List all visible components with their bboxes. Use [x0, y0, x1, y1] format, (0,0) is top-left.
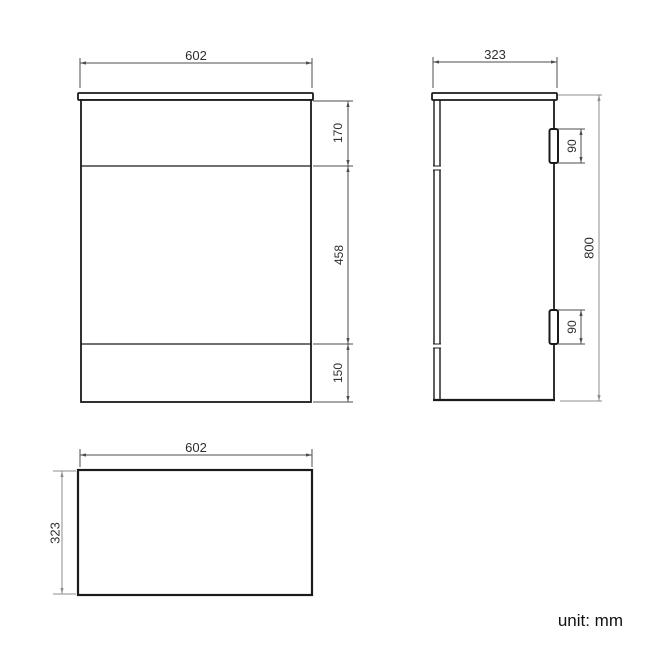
arrowhead-icon	[551, 60, 557, 63]
arrowhead-icon	[597, 95, 600, 101]
arrowhead-icon	[306, 453, 312, 456]
side-depth-dimension: 323	[433, 47, 557, 88]
technical-drawing-page: 602 170 458 150	[0, 0, 650, 650]
hinge-top-dimension: 90	[558, 129, 585, 163]
top-depth-label: 323	[48, 522, 63, 544]
units-note: unit: mm	[558, 611, 623, 630]
top-view-outline	[78, 470, 312, 595]
side-view: 323 90	[432, 47, 602, 401]
top-width-dimension: 602	[80, 440, 312, 467]
top-depth-dimension: 323	[48, 471, 77, 594]
top-width-label: 602	[185, 440, 207, 455]
front-width-label: 602	[185, 48, 207, 63]
arrowhead-icon	[306, 61, 312, 64]
arrowhead-icon	[579, 310, 582, 316]
arrowhead-icon	[346, 396, 349, 402]
hinge-bottom	[550, 310, 559, 344]
side-depth-label: 323	[484, 47, 506, 62]
arrowhead-icon	[579, 129, 582, 135]
arrowhead-icon	[433, 60, 439, 63]
arrowhead-icon	[346, 160, 349, 166]
top-view: 602 323	[48, 440, 313, 595]
hinge-top-label: 90	[565, 139, 579, 153]
arrowhead-icon	[60, 471, 63, 477]
arrowhead-icon	[346, 338, 349, 344]
front-top-section-label: 170	[331, 123, 345, 143]
front-width-dimension: 602	[80, 48, 312, 88]
arrowhead-icon	[346, 101, 349, 107]
arrowhead-icon	[579, 157, 582, 163]
arrowhead-icon	[346, 166, 349, 172]
front-height-dimensions: 170 458 150	[313, 101, 353, 402]
front-view: 602 170 458 150	[78, 48, 353, 402]
front-countertop	[78, 93, 313, 100]
side-height-label: 800	[582, 237, 597, 259]
vanity-unit-drawing: 602 170 458 150	[0, 0, 650, 650]
arrowhead-icon	[346, 344, 349, 350]
arrowhead-icon	[80, 453, 86, 456]
arrowhead-icon	[579, 338, 582, 344]
arrowhead-icon	[80, 61, 86, 64]
side-countertop	[432, 93, 557, 100]
hinge-top	[550, 129, 559, 163]
side-front-panel-strip	[433, 100, 441, 400]
arrowhead-icon	[597, 395, 600, 401]
hinge-bottom-label: 90	[565, 320, 579, 334]
front-cabinet-body	[81, 100, 311, 402]
front-bottom-section-label: 150	[331, 363, 345, 383]
hinge-bottom-dimension: 90	[558, 310, 585, 344]
front-middle-section-label: 458	[332, 245, 346, 265]
arrowhead-icon	[60, 588, 63, 594]
